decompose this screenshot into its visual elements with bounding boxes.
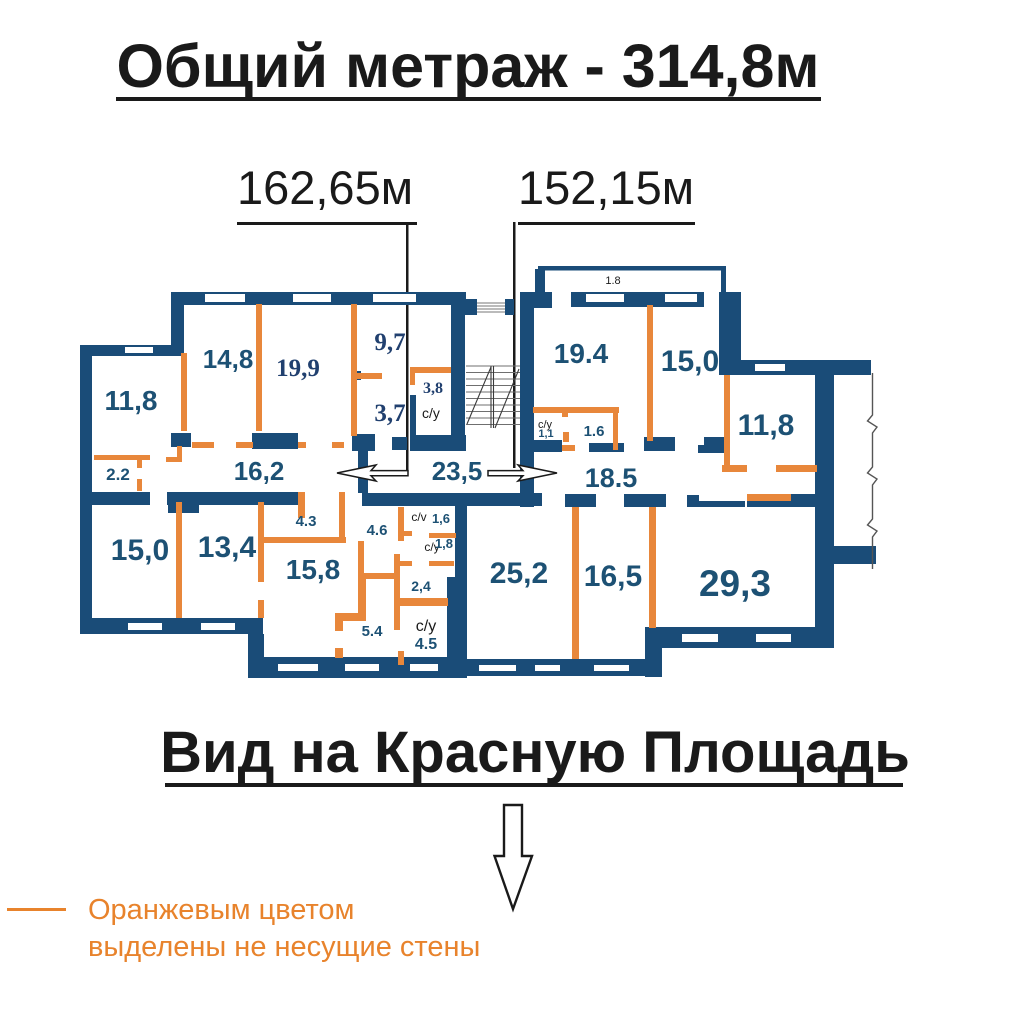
svg-text:1,8: 1,8 bbox=[435, 536, 453, 551]
svg-text:29,3: 29,3 bbox=[699, 563, 771, 604]
svg-text:16,5: 16,5 bbox=[584, 560, 642, 593]
svg-text:Оранжевым цветом: Оранжевым цветом bbox=[88, 894, 354, 926]
svg-text:1,6: 1,6 bbox=[432, 511, 450, 526]
svg-text:4.6: 4.6 bbox=[367, 522, 388, 539]
svg-text:1.8: 1.8 bbox=[605, 275, 620, 287]
svg-text:18.5: 18.5 bbox=[585, 463, 638, 493]
svg-text:выделены не несущие стены: выделены не несущие стены bbox=[88, 931, 480, 963]
svg-text:с/у: с/у bbox=[416, 618, 436, 635]
svg-text:19.4: 19.4 bbox=[554, 338, 609, 369]
svg-text:11,8: 11,8 bbox=[105, 385, 158, 416]
svg-text:5.4: 5.4 bbox=[362, 623, 384, 640]
svg-text:23,5: 23,5 bbox=[432, 456, 483, 486]
svg-text:3,8: 3,8 bbox=[423, 380, 443, 397]
svg-text:14,8: 14,8 bbox=[203, 344, 254, 374]
svg-text:2,4: 2,4 bbox=[411, 578, 431, 594]
svg-text:4.5: 4.5 bbox=[415, 636, 437, 653]
svg-text:15,0: 15,0 bbox=[111, 534, 169, 567]
svg-text:3,7: 3,7 bbox=[374, 400, 405, 427]
svg-text:9,7: 9,7 bbox=[374, 329, 405, 356]
svg-text:1.6: 1.6 bbox=[584, 423, 605, 440]
svg-text:Общий метраж - 314,8м: Общий метраж - 314,8м bbox=[116, 32, 819, 100]
svg-text:11,8: 11,8 bbox=[738, 409, 795, 442]
svg-text:16,2: 16,2 bbox=[234, 456, 285, 486]
svg-text:152,15м: 152,15м bbox=[518, 161, 694, 214]
svg-text:с/у: с/у bbox=[422, 405, 440, 421]
svg-text:13,4: 13,4 bbox=[198, 531, 257, 564]
svg-text:162,65м: 162,65м bbox=[237, 161, 413, 214]
svg-text:19,9: 19,9 bbox=[276, 355, 320, 382]
svg-text:4.3: 4.3 bbox=[296, 513, 317, 530]
svg-text:1,1: 1,1 bbox=[538, 428, 553, 440]
svg-text:15,8: 15,8 bbox=[286, 554, 341, 585]
svg-text:15,0: 15,0 bbox=[661, 345, 719, 378]
svg-text:25,2: 25,2 bbox=[490, 557, 548, 590]
svg-text:2.2: 2.2 bbox=[106, 465, 130, 484]
svg-text:Вид на Красную Площадь: Вид на Красную Площадь bbox=[160, 720, 910, 785]
svg-text:c/v: c/v bbox=[411, 510, 426, 524]
